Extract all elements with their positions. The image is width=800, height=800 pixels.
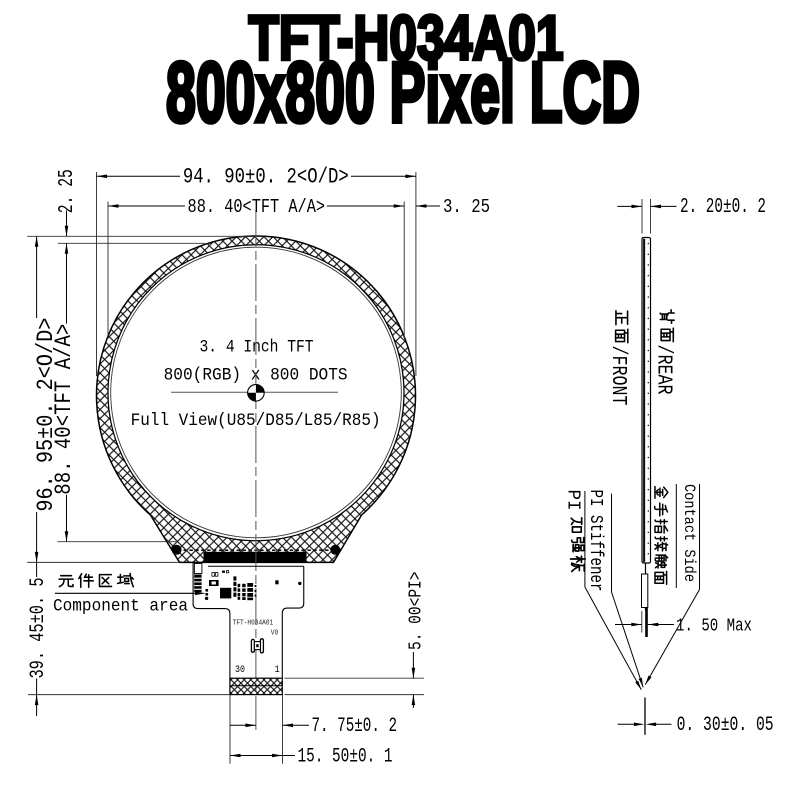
svg-text:15. 50±0. 1: 15. 50±0. 1 [298,745,393,768]
svg-text:V0: V0 [271,629,279,637]
svg-text:7. 75±0. 2: 7. 75±0. 2 [312,714,398,737]
svg-text:88. 40<TFT A/A>: 88. 40<TFT A/A> [188,196,326,218]
svg-text:Component area: Component area [53,597,188,617]
svg-text:/REAR: /REAR [652,345,677,395]
svg-text:2. 25: 2. 25 [55,169,79,213]
svg-text:88. 40<TFT A/A>: 88. 40<TFT A/A> [52,324,78,495]
svg-text:39. 45±0. 5: 39. 45±0. 5 [27,578,50,679]
svg-text:/FRONT: /FRONT [606,346,631,406]
svg-text:PI Stiffener: PI Stiffener [585,490,606,592]
svg-text:94. 90±0. 2<O/D>: 94. 90±0. 2<O/D> [183,164,349,189]
svg-text:0. 30±0. 05: 0. 30±0. 05 [677,715,774,737]
svg-text:5. 00<PI>: 5. 00<PI> [406,572,427,651]
svg-text:800x800 Pixel LCD: 800x800 Pixel LCD [166,46,640,141]
svg-text:1: 1 [275,664,280,676]
svg-text:30: 30 [235,664,245,676]
svg-text:3. 4 Inch TFT: 3. 4 Inch TFT [200,337,314,357]
svg-text:3. 25: 3. 25 [443,196,490,218]
svg-text:1. 50 Max: 1. 50 Max [676,616,752,637]
svg-text:TFT-H034A01: TFT-H034A01 [233,620,274,628]
svg-text:2. 20±0. 2: 2. 20±0. 2 [680,195,766,219]
svg-text:PI: PI [563,490,584,511]
svg-text:Contact Side: Contact Side [680,484,697,582]
